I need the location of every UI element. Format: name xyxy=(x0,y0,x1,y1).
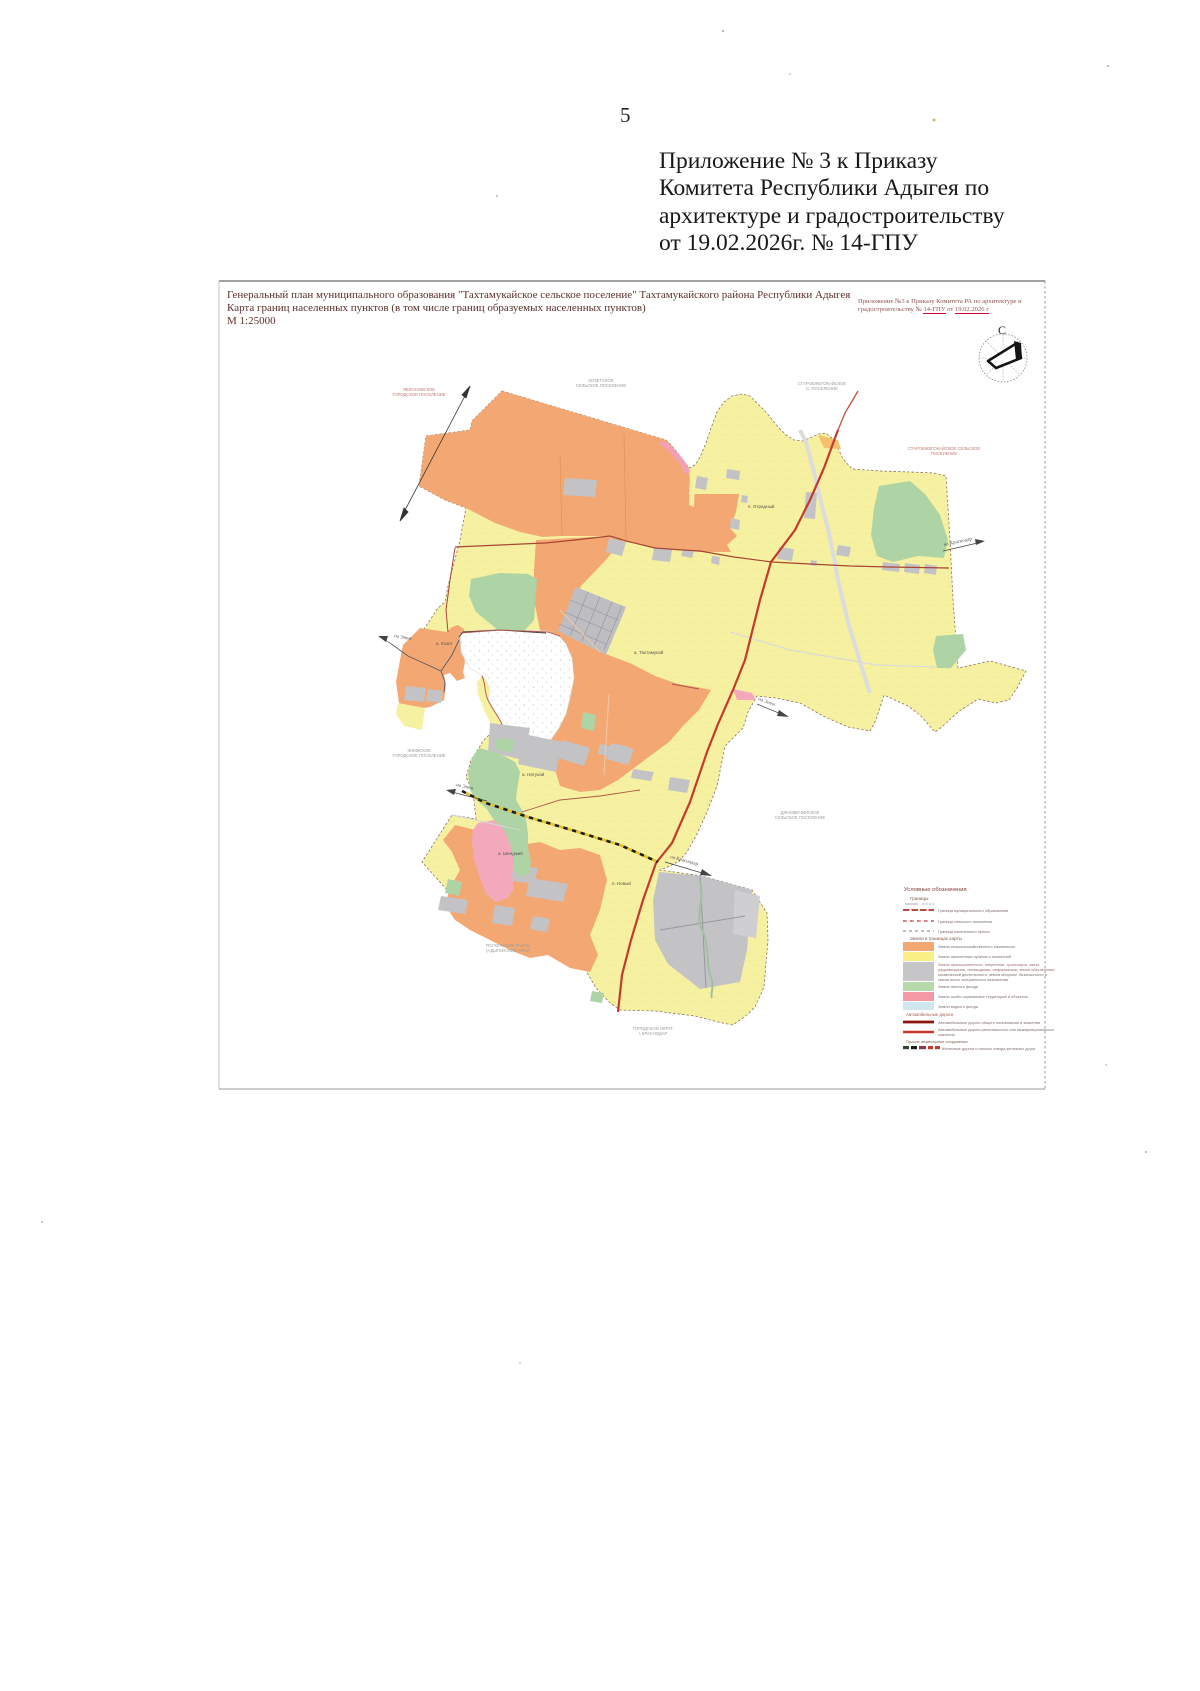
svg-text:земли иного специального назна: земли иного специального назначения xyxy=(938,977,1008,982)
svg-text:значения: значения xyxy=(938,1032,955,1037)
svg-text:г. КРАСНОДАР: г. КРАСНОДАР xyxy=(639,1031,668,1036)
svg-text:а. Тахтамукай: а. Тахтамукай xyxy=(634,649,664,655)
svg-text:Земли лесного фонда: Земли лесного фонда xyxy=(938,984,979,989)
svg-text:Земли водного фонда: Земли водного фонда xyxy=(938,1004,979,1009)
svg-text:(АДЫГЕЙСКИЙ) КРАЙ: (АДЫГЕЙСКИЙ) КРАЙ xyxy=(486,948,530,953)
svg-text:Граница населенного пункта: Граница населенного пункта xyxy=(938,929,990,934)
svg-text:Граница сельского поселения: Граница сельского поселения xyxy=(938,919,992,924)
svg-text:а. Натухай: а. Натухай xyxy=(522,771,545,777)
svg-text:Земли сельскохозяйственного на: Земли сельскохозяйственного назначения xyxy=(938,944,1015,949)
svg-text:Земли населенных пунктов и пос: Земли населенных пунктов и поселений xyxy=(938,954,1011,959)
svg-text:СЕЛЬСКОЕ ПОСЕЛЕНИЕ: СЕЛЬСКОЕ ПОСЕЛЕНИЕ xyxy=(576,383,627,388)
svg-text:п. Новый: п. Новый xyxy=(612,880,631,886)
svg-text:а. Козет: а. Козет xyxy=(436,641,453,646)
svg-text:Земли в границах карты: Земли в границах карты xyxy=(910,936,962,941)
svg-text:ПОСЕЛЕНИЕ: ПОСЕЛЕНИЕ xyxy=(931,451,958,456)
svg-text:а. Шенджий: а. Шенджий xyxy=(498,850,523,856)
svg-text:ГОРОДСКОЕ ПОСЕЛЕНИЕ: ГОРОДСКОЕ ПОСЕЛЕНИЕ xyxy=(392,753,445,758)
svg-text:С: С xyxy=(998,323,1006,337)
svg-text:Прочие инженерные сооружения: Прочие инженерные сооружения xyxy=(906,1039,968,1044)
svg-text:на Энем: на Энем xyxy=(394,634,413,642)
svg-text:Условные обозначения: Условные обозначения xyxy=(904,887,967,893)
svg-text:Железные дороги и полосы отвод: Железные дороги и полосы отвода железных… xyxy=(942,1046,1036,1051)
svg-text:ГОРОДСКОЕ ПОСЕЛЕНИЕ: ГОРОДСКОЕ ПОСЕЛЕНИЕ xyxy=(392,392,445,397)
svg-text:Автомобильные дороги общего по: Автомобильные дороги общего пользования … xyxy=(938,1020,1040,1025)
svg-text:Граница муниципального образов: Граница муниципального образования xyxy=(938,908,1008,913)
svg-text:Земли особо охраняемых террито: Земли особо охраняемых территорий и объе… xyxy=(938,994,1028,999)
svg-text:Автомобильные дороги региональ: Автомобильные дороги регионального или м… xyxy=(938,1027,1054,1032)
svg-text:на Энем: на Энем xyxy=(757,697,776,708)
svg-text:С. ПОСЕЛЕНИЕ: С. ПОСЕЛЕНИЕ xyxy=(806,386,838,391)
svg-text:Автомобильные дороги: Автомобильные дороги xyxy=(906,1012,954,1017)
svg-text:СЕЛЬСКОЕ ПОСЕЛЕНИЕ: СЕЛЬСКОЕ ПОСЕЛЕНИЕ xyxy=(775,815,826,820)
svg-text:Границы: Границы xyxy=(910,896,928,901)
svg-text:п. Отрадный: п. Отрадный xyxy=(748,503,775,509)
